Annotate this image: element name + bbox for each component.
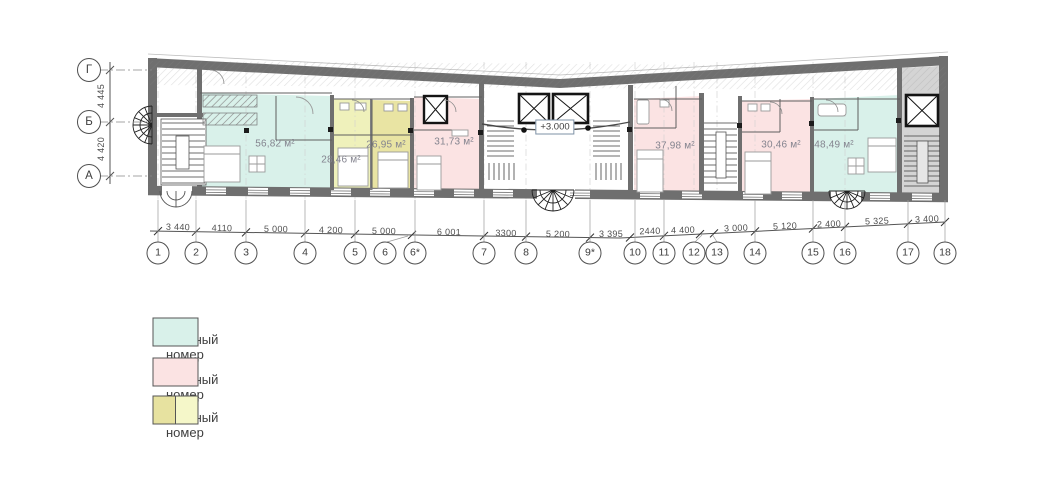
col-axis-4: 4 <box>294 242 317 265</box>
col-axis-3: 3 <box>235 242 258 265</box>
col-axis-1: 1 <box>147 242 170 265</box>
col-dim-label: 4 400 <box>671 225 695 236</box>
col-dim-label: 5 000 <box>264 224 288 234</box>
row-dim-label: 4 420 <box>96 137 106 161</box>
col-axis-5: 5 <box>344 242 367 265</box>
row-dimension-graphics <box>99 62 152 184</box>
row-axis-g: Г <box>77 58 101 82</box>
col-axis-2: 2 <box>185 242 208 265</box>
col-axis-12: 12 <box>683 242 706 265</box>
room-area-label: 26,95 м² <box>366 140 406 151</box>
col-axis-11: 11 <box>653 242 676 265</box>
col-axis-6: 6 <box>374 242 397 265</box>
row-axis-b: Б <box>77 110 101 134</box>
legend-swatch-2-3 <box>152 317 199 347</box>
col-axis-13: 13 <box>706 242 729 265</box>
col-dim-label: 3 000 <box>724 222 748 233</box>
col-axis-18: 18 <box>934 242 957 265</box>
legend-swatch-2 <box>152 357 199 387</box>
column-dot <box>585 125 591 131</box>
legend-item-1-2: - 1-2 местный номер <box>152 395 218 440</box>
elevation-mark: +3.000 <box>535 120 574 135</box>
row-axis-a: А <box>77 164 101 188</box>
col-dim-label: 3 400 <box>915 213 939 224</box>
room-area-label: 28,46 м² <box>321 155 361 166</box>
col-axis-9s: 9* <box>579 242 602 265</box>
legend-swatch-1-2 <box>152 395 199 425</box>
column-dot <box>521 127 527 133</box>
room-area-label: 48,49 м² <box>814 140 854 151</box>
room-area-label: 56,82 м² <box>255 139 295 150</box>
col-dim-label: 3 395 <box>599 229 623 239</box>
col-dim-label: 5 325 <box>865 215 889 226</box>
col-dim-label: 5 120 <box>773 220 797 231</box>
room-area-label: 31,73 м² <box>434 137 474 148</box>
legend-item-2-3: - 2-3 местный номер <box>152 317 218 362</box>
col-dim-label: 4110 <box>212 223 233 233</box>
col-axis-17: 17 <box>897 242 920 265</box>
floorplan-sheet: Г Б А 4 445 4 420 1 2 3 4 5 6 6* 7 8 9* … <box>0 0 1049 483</box>
col-dim-label: 2440 <box>639 226 661 237</box>
col-axis-16: 16 <box>834 242 857 265</box>
col-dim-label: 4 200 <box>319 225 343 235</box>
col-axis-15: 15 <box>802 242 825 265</box>
room-area-label: 30,46 м² <box>761 140 801 151</box>
col-axis-7: 7 <box>473 242 496 265</box>
col-dim-label: 6 001 <box>437 227 461 237</box>
col-dim-label: 3300 <box>495 228 516 238</box>
col-axis-8: 8 <box>515 242 538 265</box>
col-axis-6s: 6* <box>404 242 427 265</box>
col-dim-label: 2 400 <box>817 218 841 229</box>
row-dim-label: 4 445 <box>96 84 106 108</box>
col-dim-label: 5 000 <box>372 226 396 236</box>
col-axis-10: 10 <box>624 242 647 265</box>
col-dim-label: 3 440 <box>166 222 190 232</box>
col-axis-14: 14 <box>744 242 767 265</box>
room-area-label: 37,98 м² <box>655 141 695 152</box>
col-dim-label: 5 200 <box>546 229 570 239</box>
